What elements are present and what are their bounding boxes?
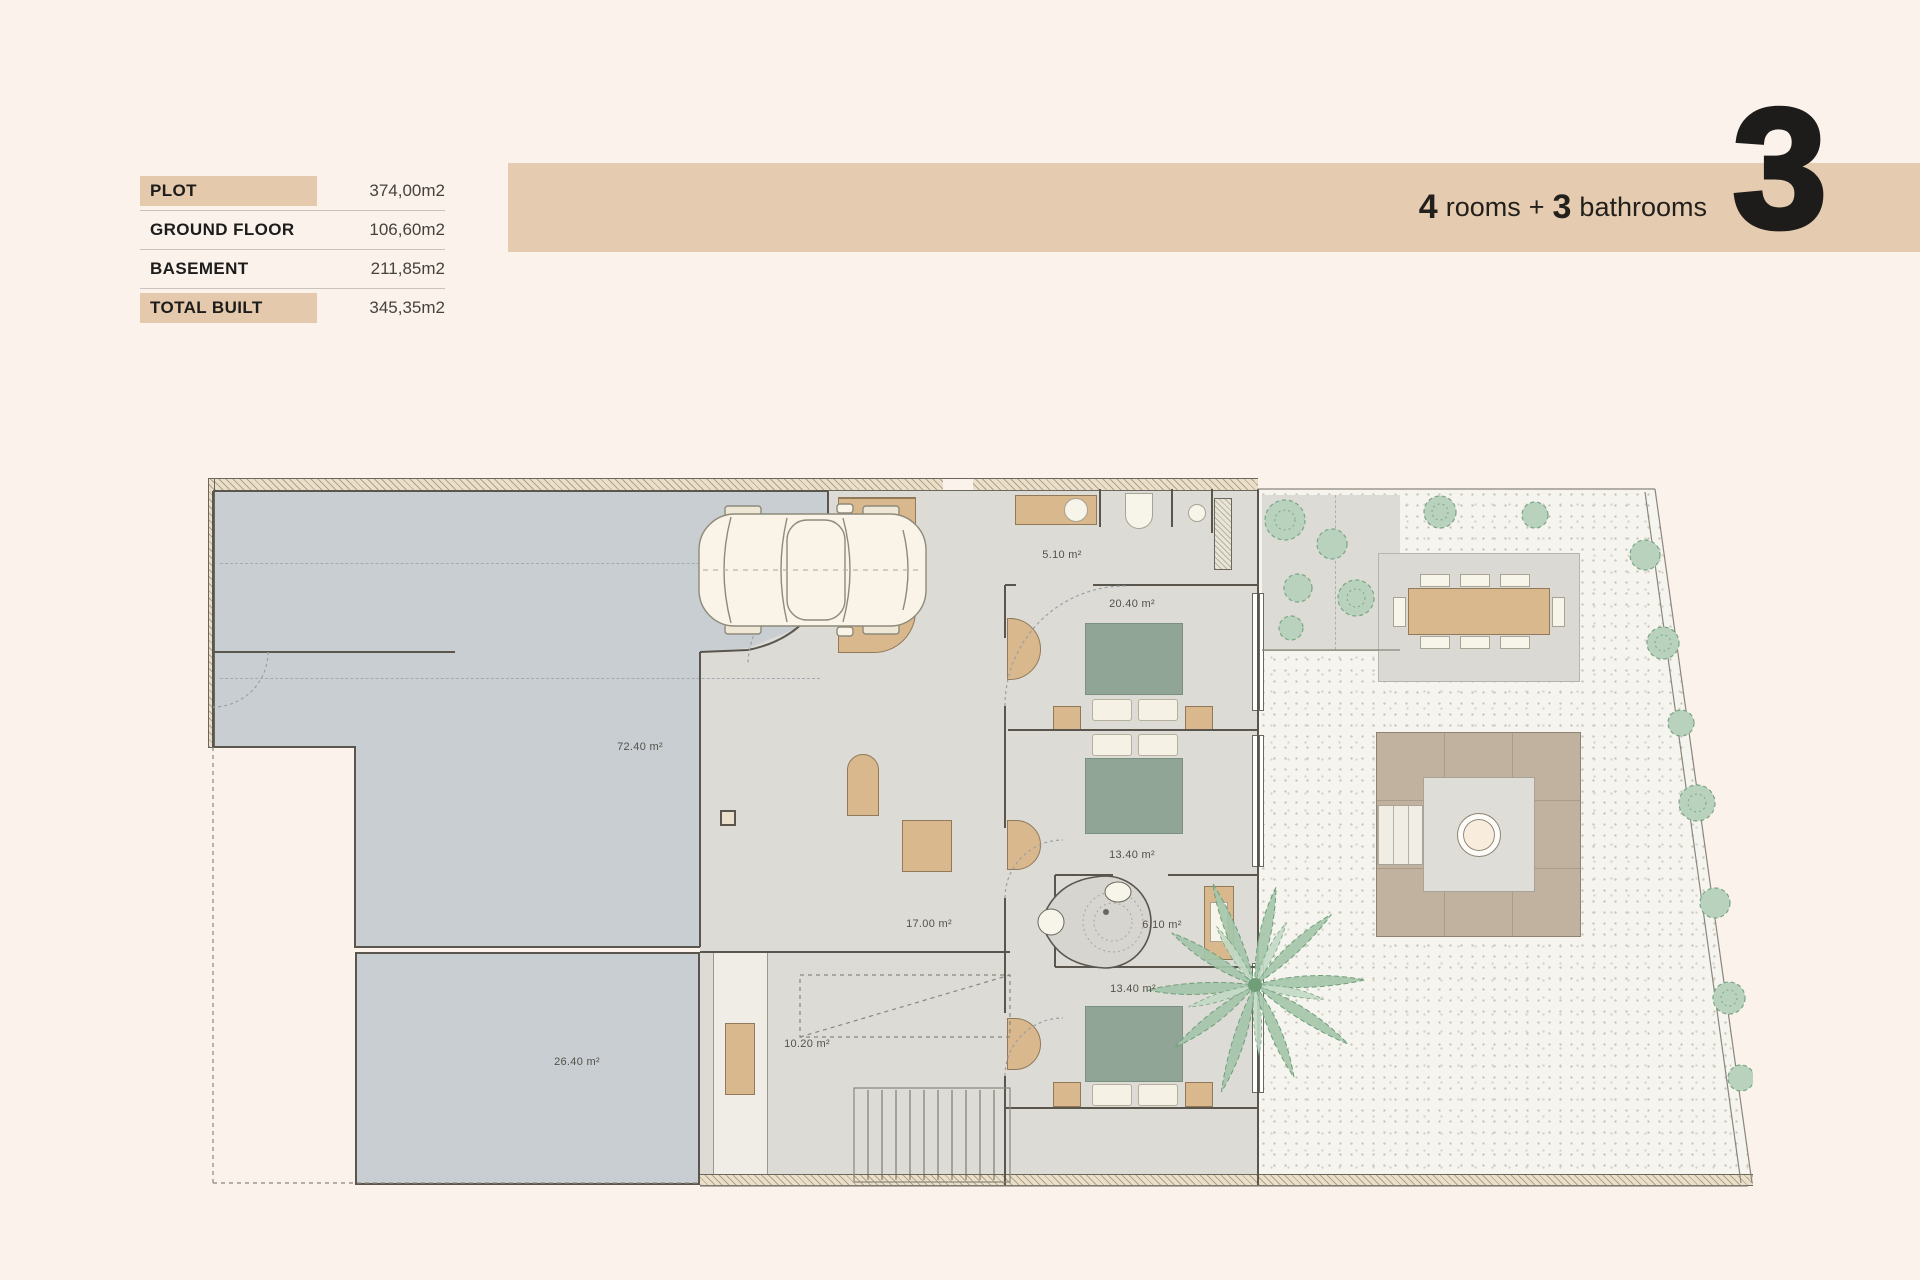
room-label-bedroom-3: 13.40 m² [1110,983,1156,995]
rooms-banner-text: 4 rooms + 3 bathrooms [1419,163,1715,252]
spec-row-basement: BASEMENT 211,85m2 [140,249,445,288]
bathrooms-label: bathrooms [1579,192,1707,223]
spec-value-total-built: 345,35m2 [317,298,445,318]
floorplan-page: { "header": { "specs": [ {"label": "PLOT… [0,0,1920,1280]
plan-linework [208,478,1753,1190]
room-label-bedroom-2: 13.40 m² [1109,849,1155,861]
spec-label-plot: PLOT [140,176,317,206]
spec-label-total-built: TOTAL BUILT [140,293,317,323]
bathrooms-count: 3 [1553,188,1572,227]
spec-row-ground-floor: GROUND FLOOR 106,60m2 [140,210,445,249]
plus-sign: + [1529,192,1545,223]
rooms-count: 4 [1419,188,1438,227]
room-label-bathroom-top: 5.10 m² [1042,549,1081,561]
spec-table: PLOT 374,00m2 GROUND FLOOR 106,60m2 BASE… [140,172,445,327]
floor-plan: 72.40 m² 26.40 m² 17.00 m² 10.20 m² 5.10… [208,478,1753,1190]
room-label-staircase: 10.20 m² [784,1038,830,1050]
room-label-bedroom-main: 20.40 m² [1109,598,1155,610]
room-label-hallway: 17.00 m² [906,918,952,930]
rooms-label: rooms [1446,192,1521,223]
palm-tree [1120,860,1390,1110]
rooms-banner: 4 rooms + 3 bathrooms [508,163,1920,252]
room-label-bathroom-middle: 6.10 m² [1142,919,1181,931]
spec-value-ground-floor: 106,60m2 [317,220,445,240]
spec-value-basement: 211,85m2 [317,259,445,279]
spec-label-basement: BASEMENT [140,254,317,284]
car-top-view [695,500,930,640]
spec-label-ground-floor: GROUND FLOOR [140,215,317,245]
spec-value-plot: 374,00m2 [317,181,445,201]
room-label-storage: 26.40 m² [554,1056,600,1068]
spec-row-total-built: TOTAL BUILT 345,35m2 [140,288,445,327]
spec-row-plot: PLOT 374,00m2 [140,172,445,210]
unit-number: 3 [1732,84,1824,254]
room-label-driveway: 72.40 m² [617,741,663,753]
